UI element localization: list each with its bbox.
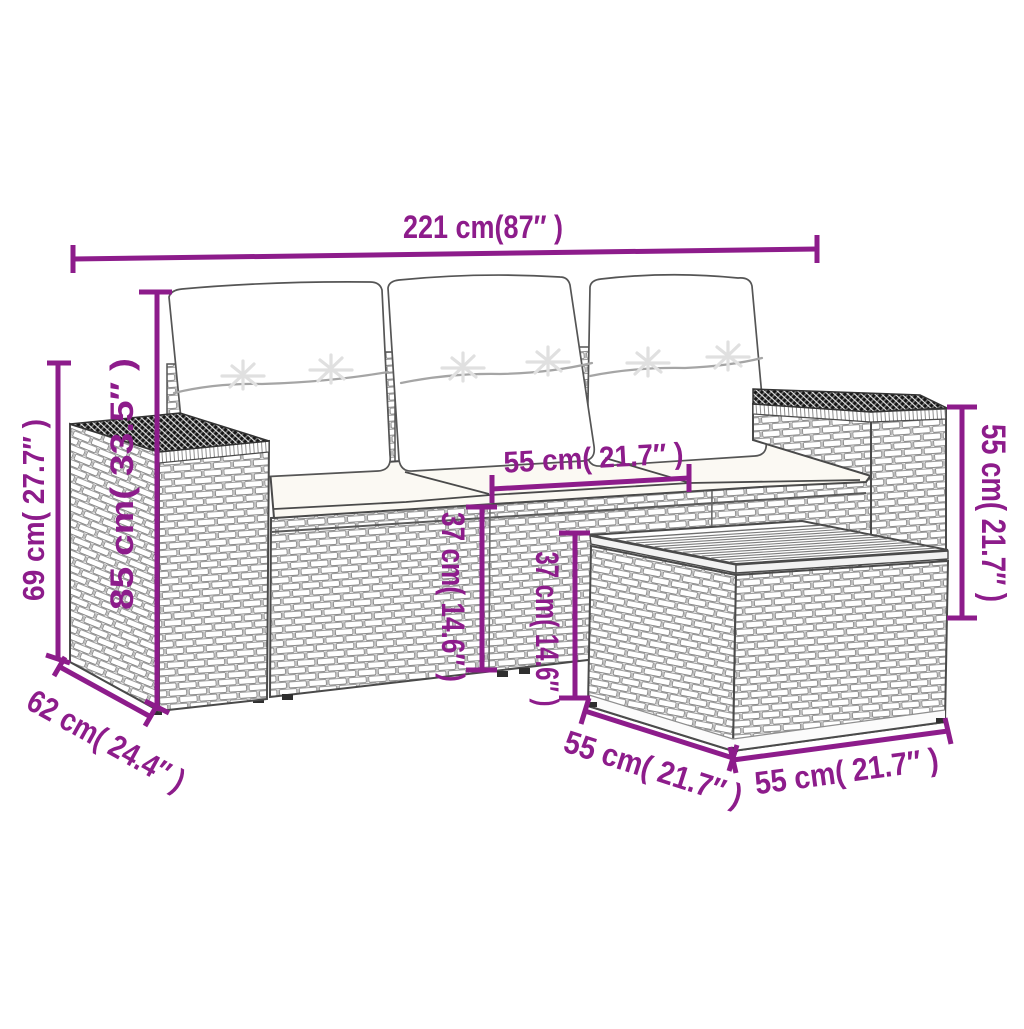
svg-text:37 cm( 14.6″ ): 37 cm( 14.6″ ) bbox=[435, 512, 471, 682]
svg-text:69 cm( 27.7″ ): 69 cm( 27.7″ ) bbox=[16, 419, 51, 601]
svg-text:85 cm( 33.5″ ): 85 cm( 33.5″ ) bbox=[104, 358, 140, 610]
svg-text:221 cm(87″ ): 221 cm(87″ ) bbox=[403, 209, 563, 245]
svg-text:37 cm( 14.6″ ): 37 cm( 14.6″ ) bbox=[529, 552, 565, 707]
svg-text:55 cm( 21.7″ ): 55 cm( 21.7″ ) bbox=[974, 424, 1012, 602]
